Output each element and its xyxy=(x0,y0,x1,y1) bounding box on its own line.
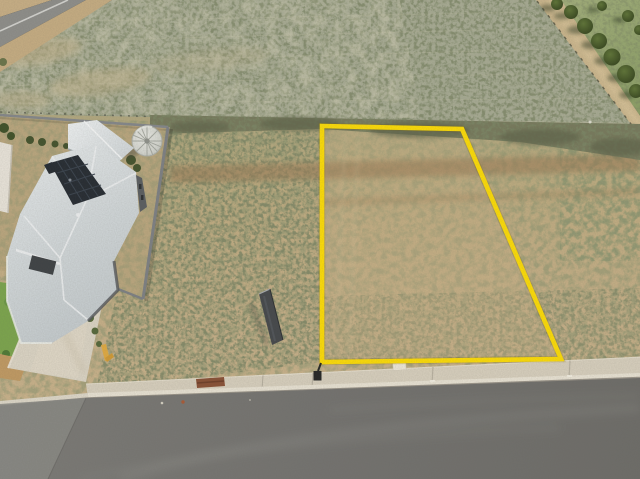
photo-grain-overlay xyxy=(0,0,640,479)
aerial-photo-vacant-lot xyxy=(0,0,640,479)
aerial-photo-canvas xyxy=(0,0,640,479)
